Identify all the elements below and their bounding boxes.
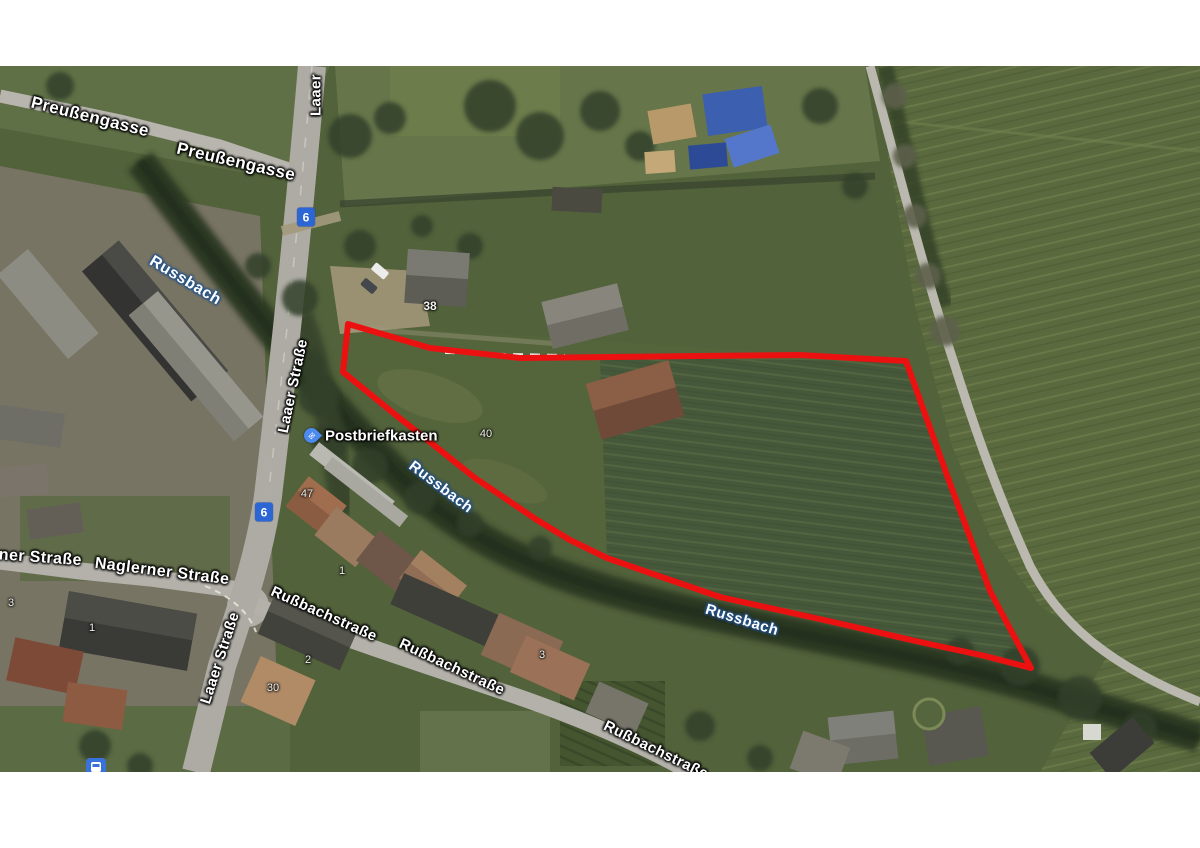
satellite-map[interactable]: Preußengasse Preußengasse Laaer Laaer St…	[0, 66, 1200, 772]
route-shield: 6	[255, 503, 273, 522]
map-screenshot-page: Preußengasse Preußengasse Laaer Laaer St…	[0, 0, 1200, 848]
postbriefkasten-label: Postbriefkasten	[325, 428, 438, 445]
bus-stop-icon[interactable]	[86, 758, 106, 772]
house-number-3: 3	[539, 649, 545, 661]
house-number-3: 3	[8, 597, 14, 609]
house-number-2: 2	[305, 654, 311, 666]
satellite-imagery	[0, 66, 1200, 772]
house-number-1: 1	[339, 565, 345, 577]
house-number-30: 30	[267, 682, 279, 694]
mail-envelope-icon: ✉	[301, 425, 322, 446]
route-shield: 6	[297, 208, 315, 227]
house-number-40: 40	[480, 428, 492, 440]
house-number-38: 38	[423, 299, 436, 313]
house-number-47: 47	[301, 488, 313, 500]
house-number-1: 1	[89, 622, 95, 634]
poi-postbriefkasten[interactable]: ✉ Postbriefkasten	[304, 428, 424, 454]
